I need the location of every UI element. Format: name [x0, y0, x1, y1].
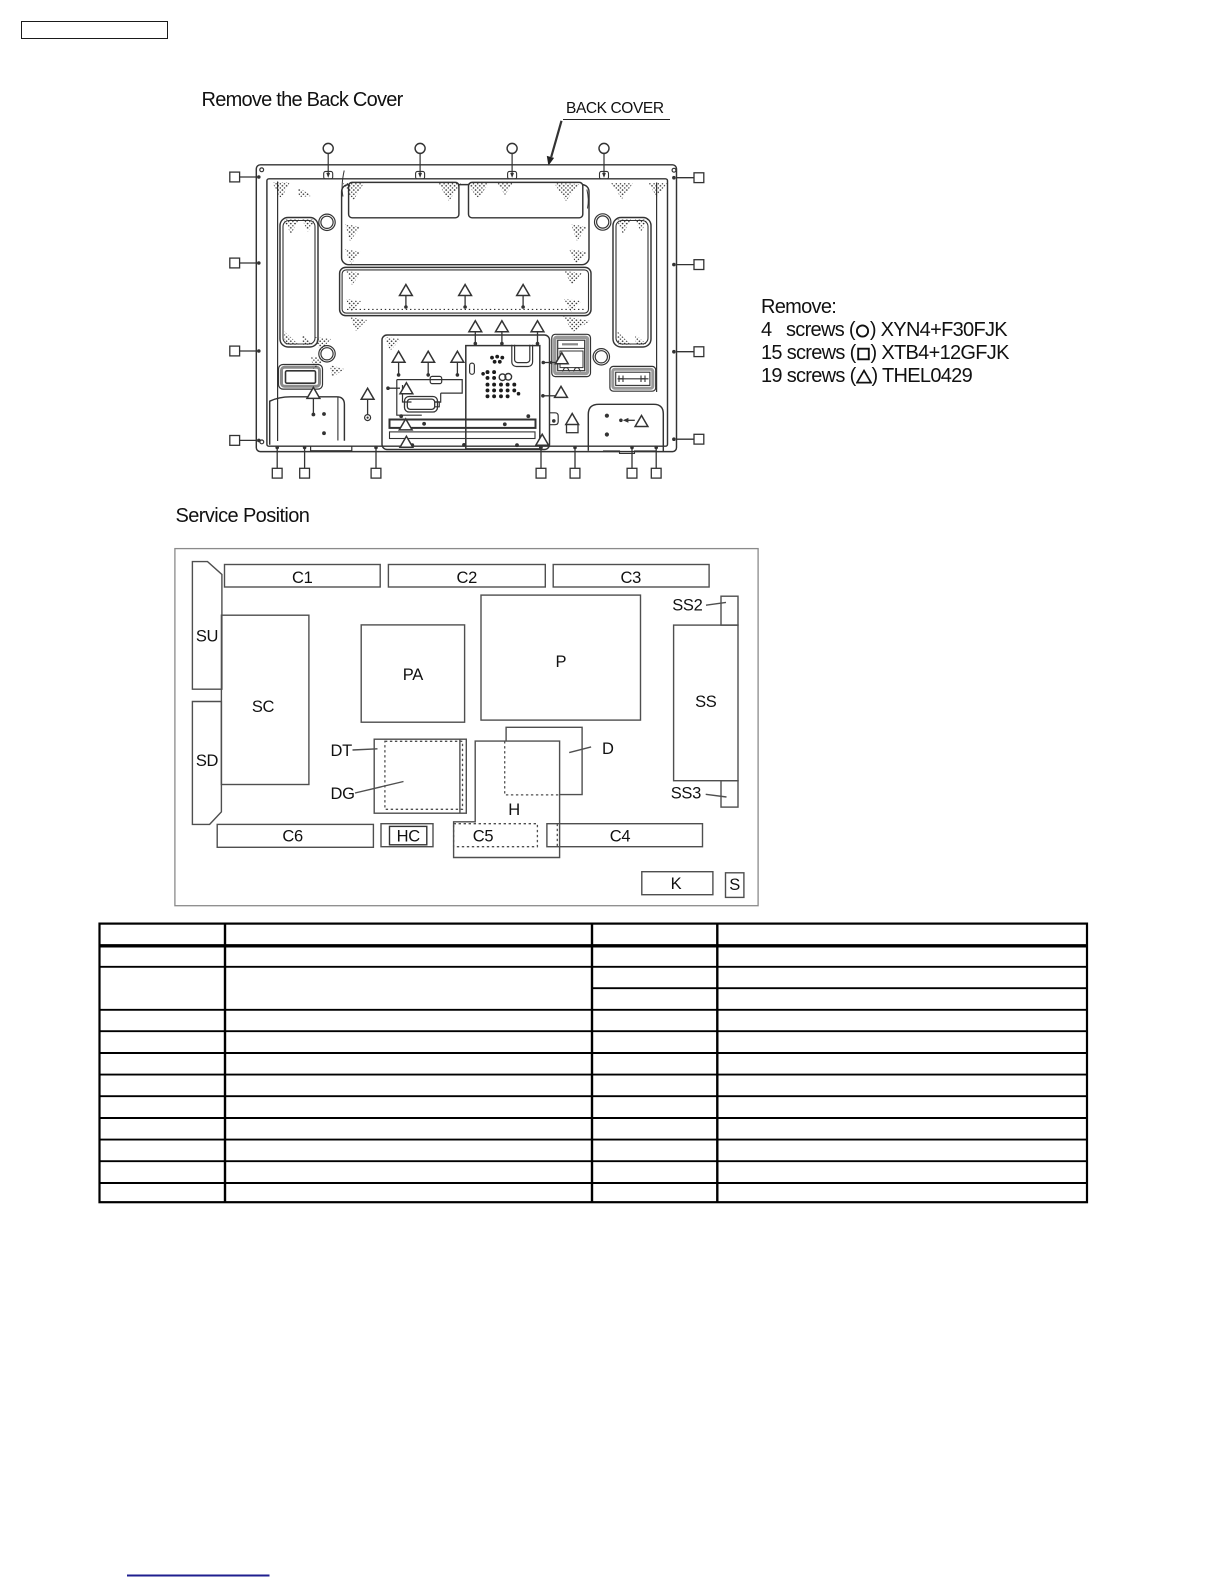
svg-text:SU: SU	[196, 628, 218, 646]
svg-text:C5: C5	[473, 828, 494, 846]
svg-text:SD: SD	[196, 752, 219, 770]
svg-text:SS: SS	[695, 693, 717, 711]
svg-text:DG: DG	[331, 785, 355, 803]
svg-text:DT: DT	[331, 742, 353, 760]
svg-text:K: K	[671, 875, 682, 893]
svg-text:S: S	[729, 876, 740, 894]
svg-text:PA: PA	[403, 666, 423, 684]
svg-text:HC: HC	[397, 828, 421, 846]
svg-text:C1: C1	[292, 569, 313, 587]
svg-text:C4: C4	[610, 828, 631, 846]
svg-text:SS3: SS3	[671, 785, 701, 803]
svg-text:C2: C2	[457, 569, 478, 587]
svg-text:SC: SC	[252, 698, 275, 716]
svg-text:D: D	[602, 740, 614, 758]
svg-text:C6: C6	[282, 828, 303, 846]
svg-text:C3: C3	[621, 569, 642, 587]
svg-text:SS2: SS2	[672, 597, 702, 615]
svg-text:H: H	[508, 801, 520, 819]
svg-text:P: P	[555, 653, 566, 671]
